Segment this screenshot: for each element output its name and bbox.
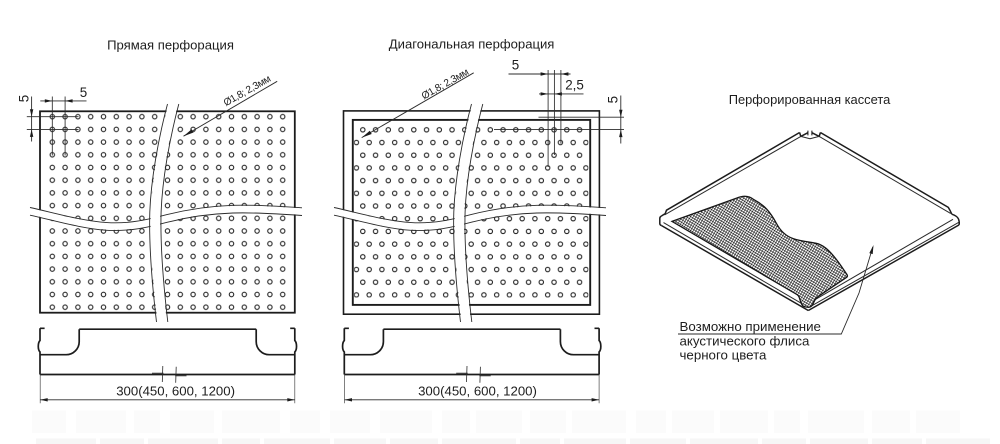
svg-text:Перфорированная кассета: Перфорированная кассета [729,92,891,107]
svg-text:акустического флиса: акустического флиса [680,333,810,348]
svg-text:5: 5 [512,58,519,73]
svg-text:5: 5 [80,85,87,100]
svg-text:Диагональная перфорация: Диагональная перфорация [389,37,555,52]
svg-text:Возможно применение: Возможно применение [680,319,821,334]
svg-text:2,5: 2,5 [565,77,584,92]
svg-text:300(450, 600, 1200): 300(450, 600, 1200) [418,384,537,399]
svg-text:Прямая перфорация: Прямая перфорация [107,38,234,53]
svg-text:5: 5 [606,96,621,103]
svg-text:5: 5 [17,95,32,102]
svg-text:черного цвета: черного цвета [680,348,768,363]
svg-text:300(450, 600, 1200): 300(450, 600, 1200) [116,384,235,399]
